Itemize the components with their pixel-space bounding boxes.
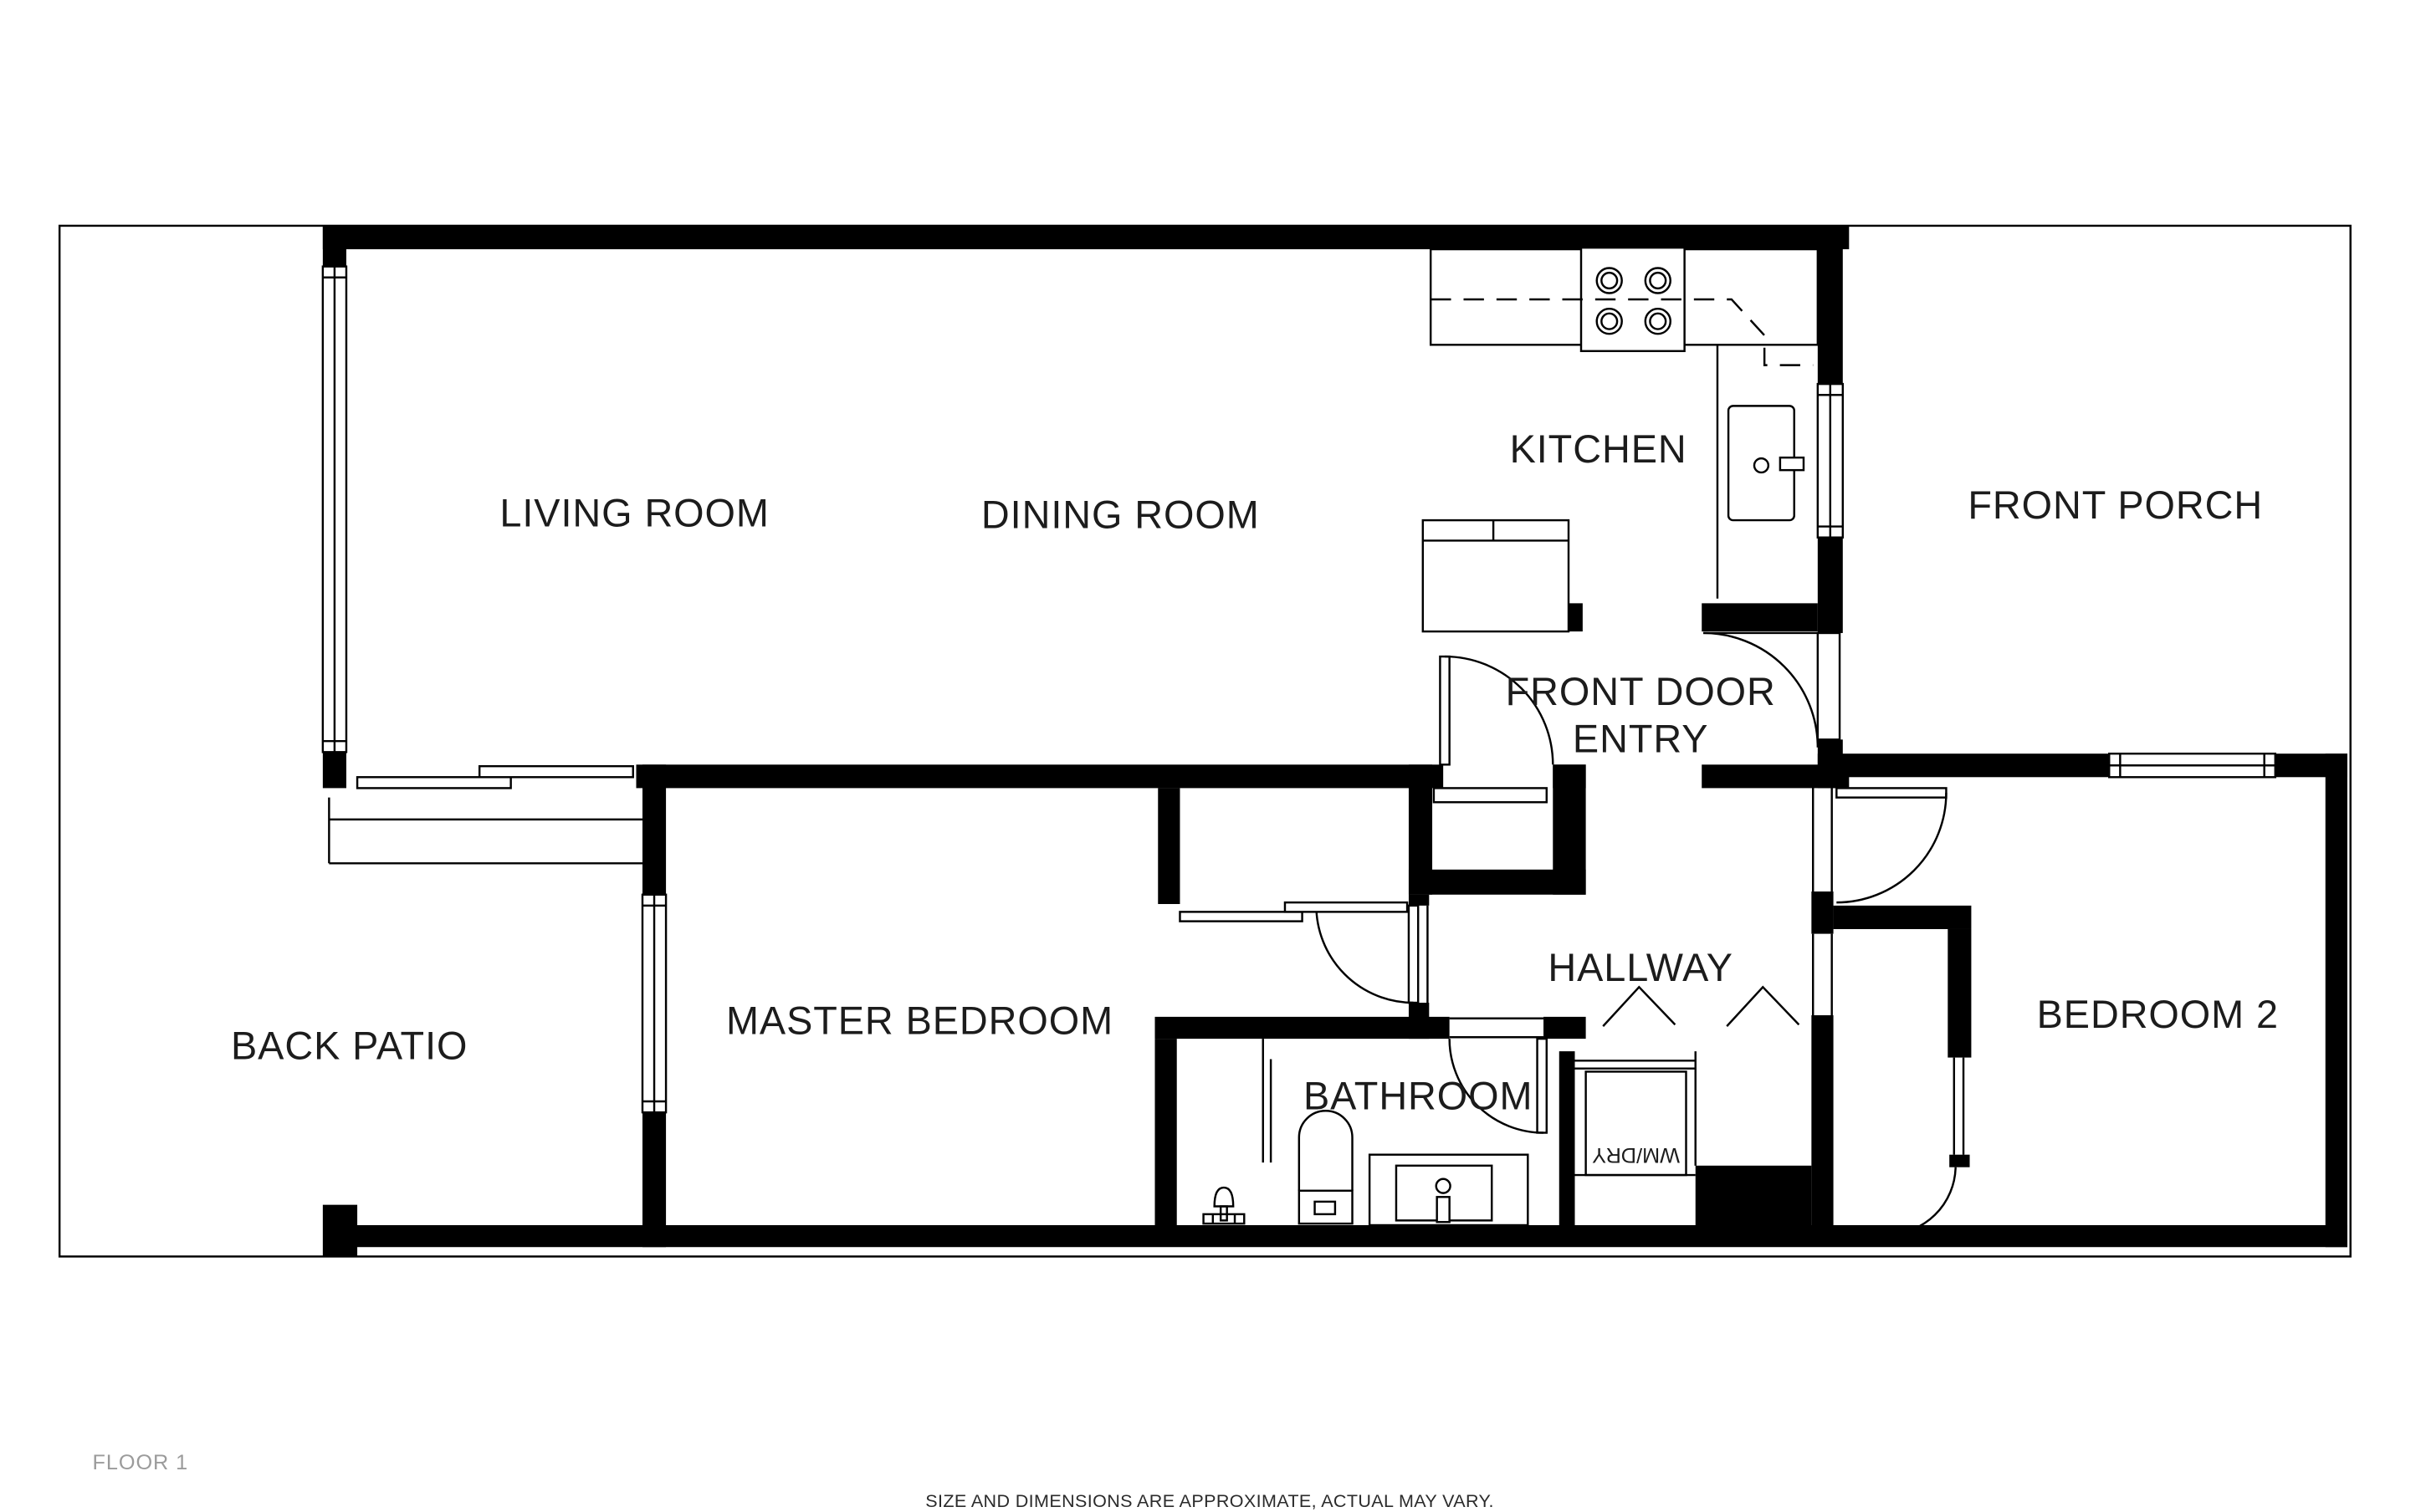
toilet-icon	[1299, 1111, 1353, 1223]
room-label-entry: ENTRY	[1573, 717, 1709, 760]
wm-dry-label: WM/DRY	[1592, 1143, 1680, 1167]
room-label-front-porch: FRONT PORCH	[1968, 483, 2263, 527]
wall-bathroom-top-left	[1155, 1017, 1450, 1039]
wall-wmdry-left	[1559, 1051, 1575, 1225]
room-label-hallway: HALLWAY	[1548, 946, 1733, 989]
wall-mid	[636, 764, 1443, 788]
patio-steps	[329, 798, 642, 864]
wall-entry-closet-bottom	[1409, 870, 1586, 895]
wall-kitchen-bottom-right	[1702, 603, 1818, 631]
wall-hall-east-2	[1811, 1015, 1833, 1225]
room-label-master-bedroom: MASTER BEDROOM	[726, 999, 1113, 1042]
bedroom2-closet-door-icon	[1886, 1058, 1963, 1235]
room-label-kitchen: KITCHEN	[1510, 427, 1687, 471]
living-room-window-icon	[323, 267, 346, 753]
windows	[323, 267, 2275, 1112]
wall-bed2-closet-right	[1948, 929, 1971, 1058]
wall-porch-1	[1818, 226, 1843, 393]
wall-bottom	[327, 1225, 2347, 1247]
shower-head-icon	[1204, 1188, 1245, 1223]
wall-top	[323, 226, 1849, 249]
washer-dryer-closet: WM/DRY	[1575, 1051, 1696, 1175]
floor-plan: WM/DRY LIVING ROOM DINING ROOM KITCHEN F…	[0, 0, 2421, 1512]
floor-label: FLOOR 1	[93, 1451, 189, 1474]
wall-hall-east-1	[1811, 891, 1833, 934]
bathroom-fixtures	[1204, 1039, 1528, 1225]
wall-master-left-upper	[642, 764, 666, 894]
disclaimer: SIZE AND DIMENSIONS ARE APPROXIMATE, ACT…	[925, 1491, 1494, 1511]
wall-left-upper	[323, 226, 346, 269]
kitchen-sink-icon	[1728, 406, 1804, 520]
outer-boundary	[59, 226, 2351, 1257]
wall-bed2-top-left	[1818, 753, 2109, 777]
bifold-door-chevron-icon	[1603, 987, 1675, 1026]
room-label-living-room: LIVING ROOM	[499, 492, 769, 535]
vanity-sink-icon	[1369, 1155, 1528, 1225]
wall-master-door-top	[1409, 895, 1429, 906]
master-door-icon	[1316, 906, 1427, 1003]
wall-bed2-closet-top	[1834, 906, 1972, 929]
bedroom2-porch-window-icon	[2109, 753, 2275, 777]
kitchen-porch-window-icon	[1818, 384, 1843, 538]
wall-right	[2326, 753, 2347, 1247]
kitchen-island	[1423, 520, 1569, 631]
wall-bed2-closet-jamb-block	[1949, 1155, 1969, 1167]
bedroom2-door-icon	[1813, 780, 1946, 902]
wall-bathroom-left	[1155, 1039, 1177, 1225]
wall-chase-mass	[1696, 1166, 1812, 1225]
shower-partition	[1263, 1039, 1271, 1162]
wall-bathroom-top-right	[1543, 1017, 1586, 1039]
room-label-bathroom: BATHROOM	[1303, 1074, 1533, 1117]
room-label-dining-room: DINING ROOM	[981, 493, 1260, 536]
master-closet-sliding-door-icon	[1180, 902, 1407, 921]
room-label-front-door: FRONT DOOR	[1506, 670, 1776, 713]
room-label-bedroom-2: BEDROOM 2	[2037, 993, 2279, 1036]
room-label-back-patio: BACK PATIO	[231, 1024, 468, 1067]
wall-master-closet-left	[1158, 788, 1180, 904]
bifold-door-chevron-icon	[1727, 987, 1799, 1026]
wall-porch-2	[1818, 538, 1843, 633]
bedroom2-closet-opening	[1813, 934, 1831, 1015]
master-window-icon	[642, 895, 666, 1112]
patio-sliding-door-icon	[357, 766, 633, 788]
